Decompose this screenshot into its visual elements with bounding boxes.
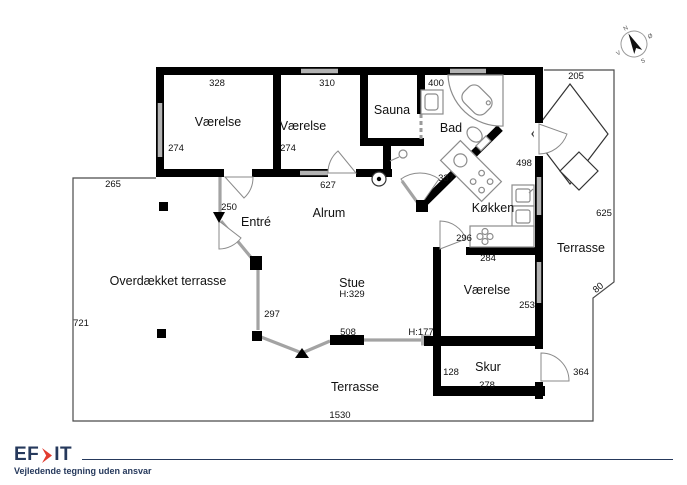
room-label-alrum: Alrum <box>313 206 346 220</box>
dim-284: 284 <box>480 253 496 264</box>
room-label-sauna: Sauna <box>374 103 410 117</box>
dim-337: 337 <box>438 173 454 184</box>
dim-721: 721 <box>73 318 89 329</box>
floorplan-drawing: Værelse Værelse Sauna Bad Køkken Alrum E… <box>0 0 687 440</box>
dim-250: 250 <box>221 202 237 213</box>
room-label-terrasse-south: Terrasse <box>331 380 379 394</box>
shower-icon <box>390 150 407 161</box>
disclaimer-text: Vejledende tegning uden ansvar <box>14 466 152 476</box>
logo-chevron-icon <box>40 447 53 464</box>
dim-80: 80 <box>591 280 606 295</box>
room-label-vaerelse2: Værelse <box>280 119 327 133</box>
logo-text-left: EF <box>14 444 39 466</box>
room-label-vaerelse3: Værelse <box>464 283 511 297</box>
dim-205: 205 <box>568 71 584 82</box>
compass-v: V <box>616 50 622 57</box>
footer-divider <box>82 459 673 460</box>
room-label-overdaekket-terrasse: Overdækket terrasse <box>110 274 227 288</box>
room-label-skur: Skur <box>475 360 501 374</box>
compass-s: S <box>640 58 646 65</box>
floorplan-page: Værelse Værelse Sauna Bad Køkken Alrum E… <box>0 0 687 485</box>
dim-296: 296 <box>456 233 472 244</box>
compass-n: N <box>623 25 630 32</box>
room-label-vaerelse1: Værelse <box>195 115 242 129</box>
dim-364: 364 <box>573 367 589 378</box>
compass-icon: N Ø S V <box>607 17 663 74</box>
room-label-terrasse-east: Terrasse <box>557 241 605 255</box>
bathtub-icon <box>448 75 503 126</box>
floor-drain-icon <box>372 172 386 186</box>
dim-297: 297 <box>264 309 280 320</box>
dim-265: 265 <box>105 179 121 190</box>
dim-508: 508 <box>340 327 356 338</box>
room-label-stue: Stue <box>339 276 365 290</box>
compass-oe: Ø <box>647 33 654 41</box>
room-label-entre: Entré <box>241 215 271 229</box>
toilet-icon <box>464 124 491 151</box>
dim-253: 253 <box>519 300 535 311</box>
dim-627: 627 <box>320 180 336 191</box>
dim-625: 625 <box>596 208 612 219</box>
dim-128: 128 <box>443 367 459 378</box>
dim-310: 310 <box>319 78 335 89</box>
dim-274b: 274 <box>280 143 296 154</box>
dim-h177: H:177 <box>408 327 433 338</box>
logo-text-right: IT <box>54 444 72 466</box>
room-label-bad: Bad <box>440 121 462 135</box>
room-height-stue: H:329 <box>339 289 364 300</box>
company-logo: EFIT <box>14 444 72 466</box>
kitchen-counter-diagonal-icon <box>441 141 502 202</box>
washing-machine-icon <box>421 90 443 114</box>
dim-274a: 274 <box>168 143 184 154</box>
dim-1530: 1530 <box>329 410 350 421</box>
room-label-koekken: Køkken <box>472 201 514 215</box>
dim-400: 400 <box>428 78 444 89</box>
dim-328: 328 <box>209 78 225 89</box>
dim-498: 498 <box>516 158 532 169</box>
dim-278: 278 <box>479 380 495 391</box>
